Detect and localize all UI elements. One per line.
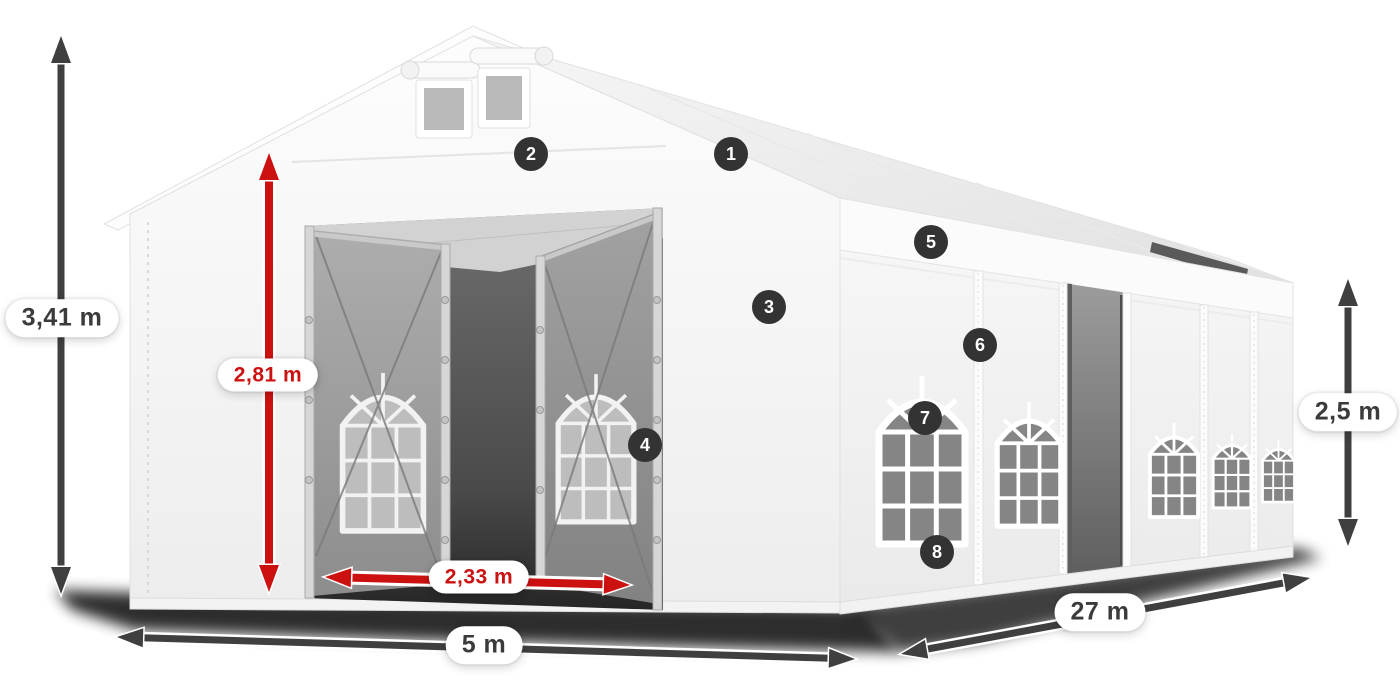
dimension-label-front-width: 5 m — [446, 626, 523, 664]
dimension-label-door-width: 2,33 m — [429, 560, 529, 593]
hotspot-2[interactable]: 2 — [514, 137, 548, 171]
hotspot-4[interactable]: 4 — [628, 428, 662, 462]
tent-dimension-diagram: 3,41 m 2,81 m 2,33 m 5 m 27 m 2,5 m 1 2 … — [0, 0, 1400, 700]
dimension-label-inner-height: 2,81 m — [218, 358, 318, 391]
hotspot-1[interactable]: 1 — [714, 137, 748, 171]
front-door-panel-left — [312, 230, 446, 596]
dimension-label-side-height: 2,5 m — [1299, 393, 1397, 431]
tent-illustration — [0, 0, 1400, 700]
front-door-panel-right — [540, 212, 658, 604]
hotspot-3[interactable]: 3 — [752, 290, 786, 324]
dimension-label-side-length: 27 m — [1055, 593, 1146, 631]
hotspot-8[interactable]: 8 — [920, 535, 954, 569]
hotspot-6[interactable]: 6 — [963, 328, 997, 362]
dimension-label-total-height: 3,41 m — [6, 299, 119, 337]
front-door-opening — [305, 208, 663, 610]
hotspot-5[interactable]: 5 — [914, 225, 948, 259]
sidewall-door-gap — [1063, 283, 1127, 574]
hotspot-7[interactable]: 7 — [908, 401, 942, 435]
